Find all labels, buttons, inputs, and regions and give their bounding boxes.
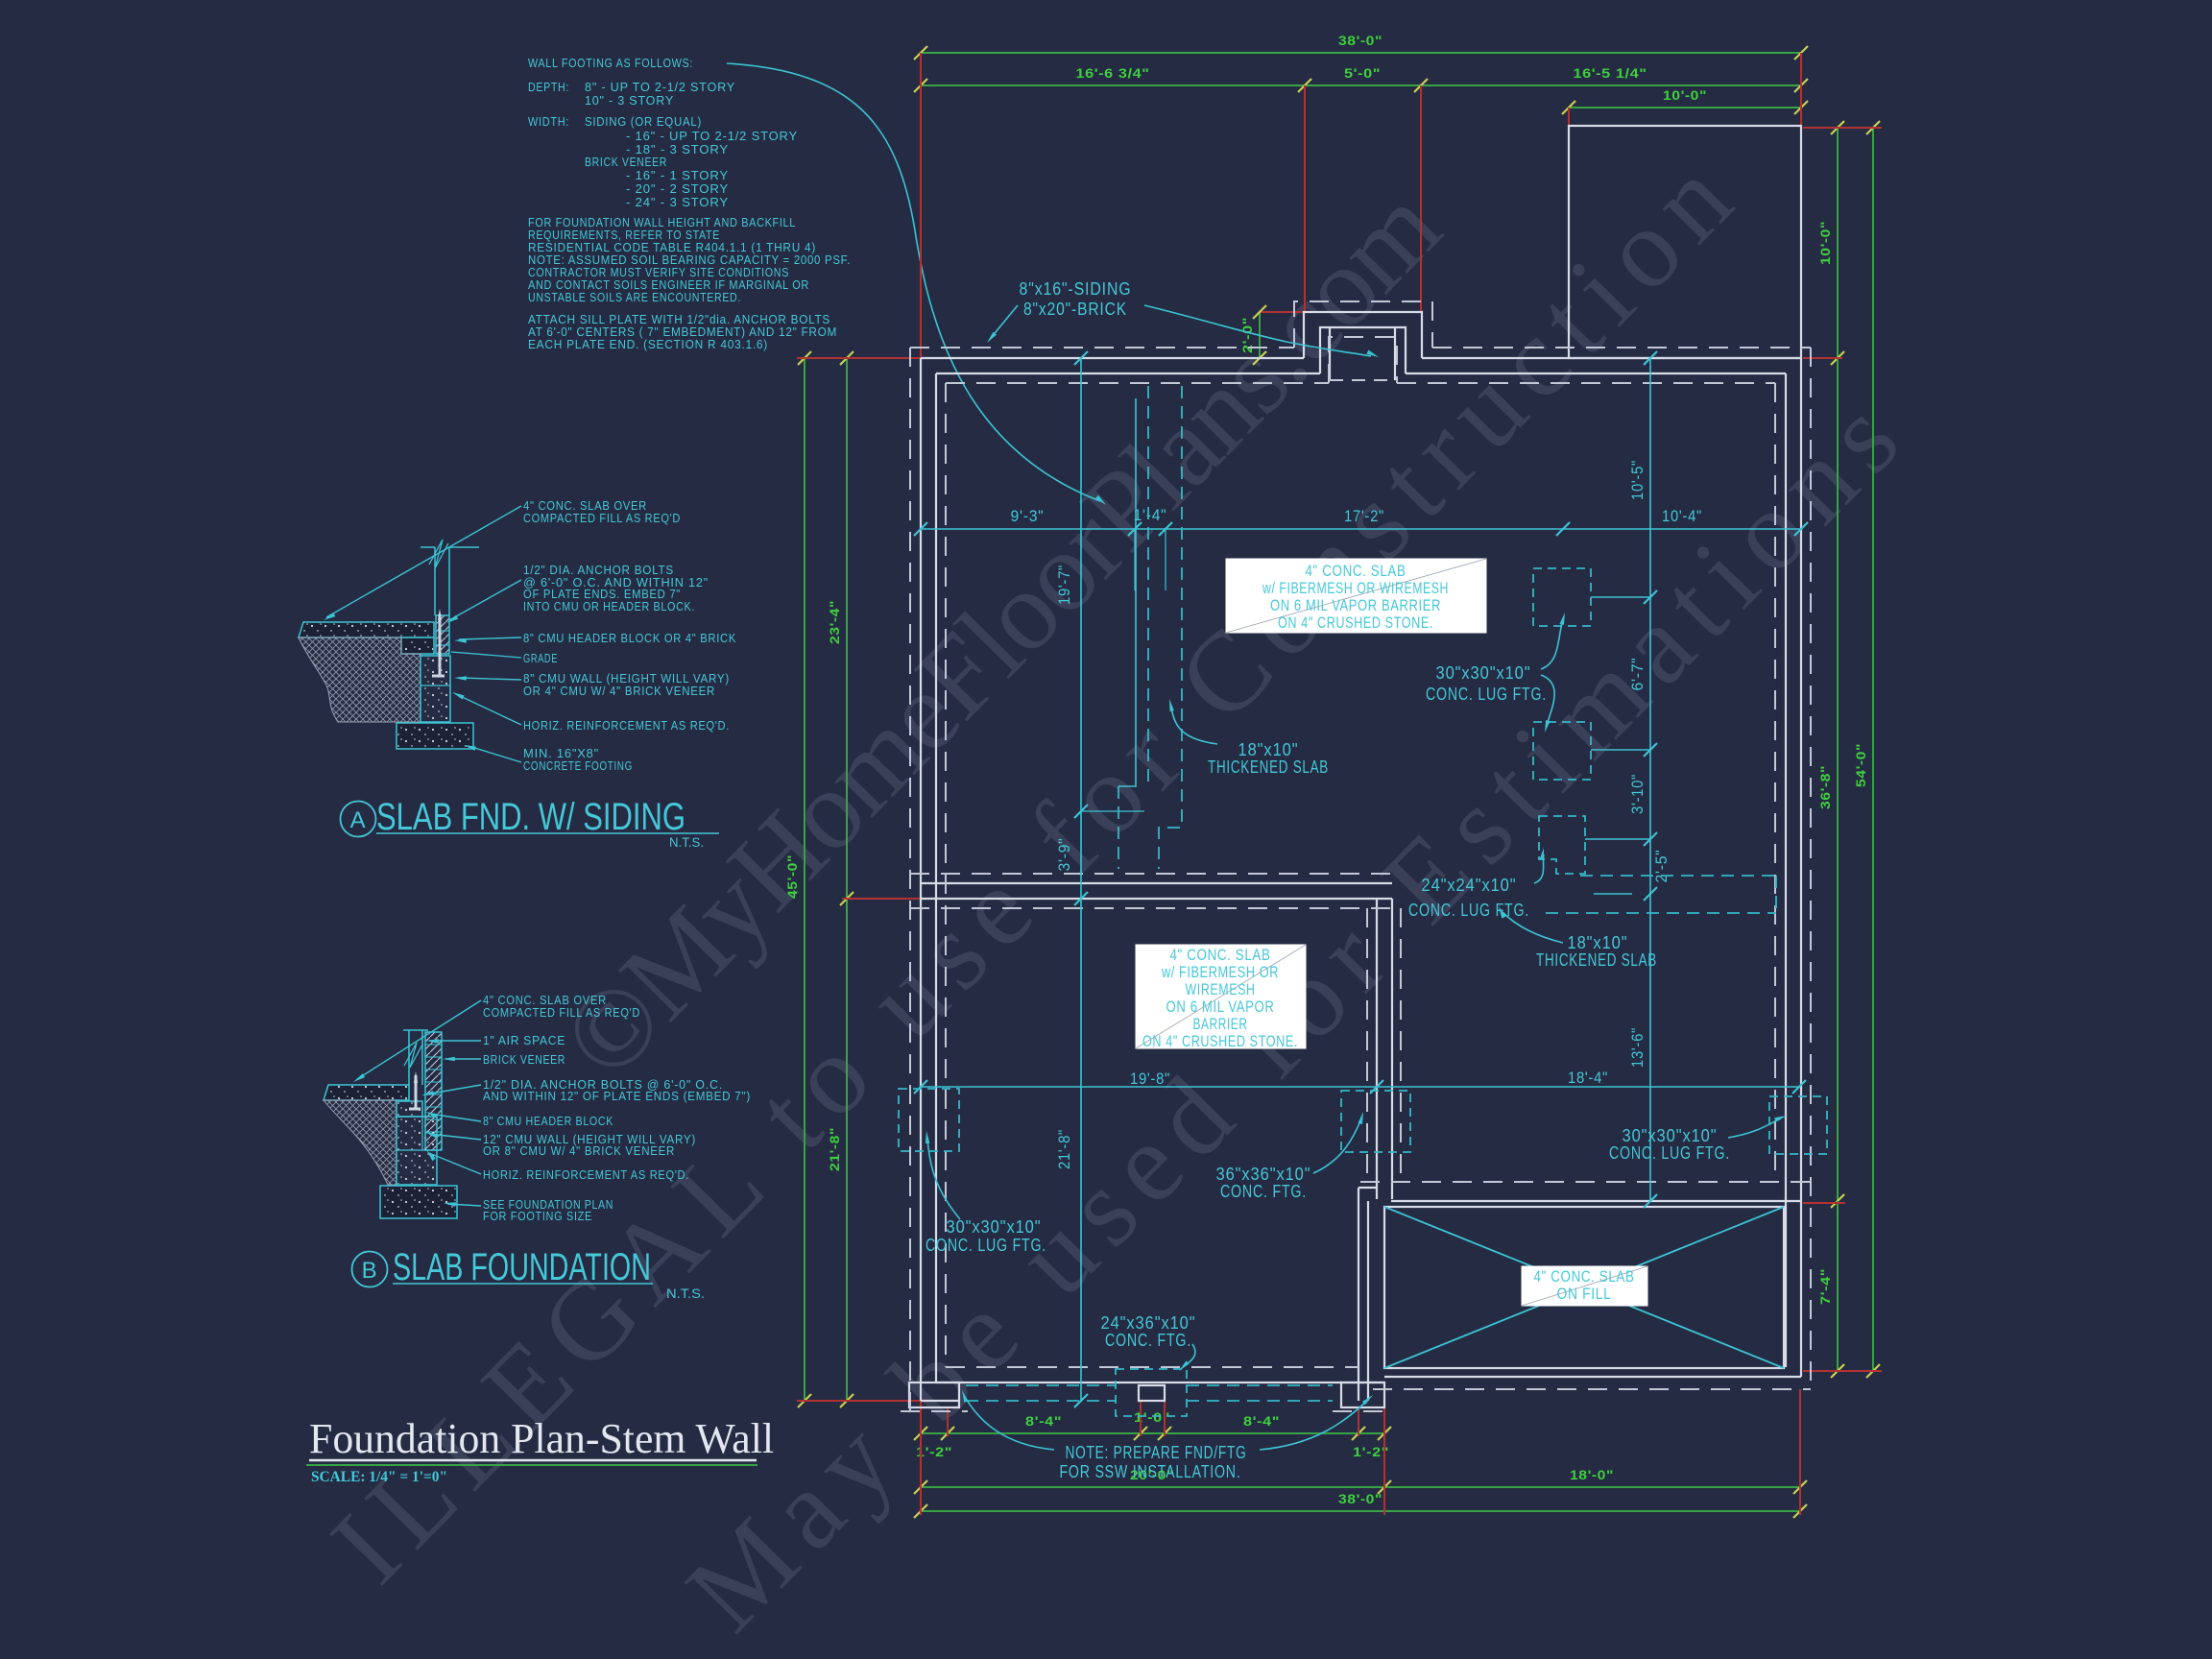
svg-text:8"x20"-BRICK: 8"x20"-BRICK: [1023, 300, 1127, 319]
svg-text:- 16" - 1 STORY: - 16" - 1 STORY: [626, 168, 729, 182]
svg-text:DEPTH:: DEPTH:: [528, 80, 569, 94]
svg-text:ON 6 MIL VAPOR BARRIER: ON 6 MIL VAPOR BARRIER: [1270, 596, 1441, 614]
svg-text:THICKENED SLAB: THICKENED SLAB: [1536, 950, 1657, 970]
svg-text:24"x36"x10": 24"x36"x10": [1101, 1313, 1196, 1333]
svg-text:THICKENED SLAB: THICKENED SLAB: [1208, 757, 1329, 777]
svg-text:- 16" - UP TO 2-1/2 STORY: - 16" - UP TO 2-1/2 STORY: [626, 129, 798, 143]
svg-text:18"x10": 18"x10": [1238, 740, 1299, 759]
svg-text:21'-8": 21'-8": [1055, 1129, 1073, 1169]
svg-text:EACH PLATE END. (SECTION R 403: EACH PLATE END. (SECTION R 403.1.6): [528, 337, 768, 351]
svg-text:13'-6": 13'-6": [1628, 1027, 1647, 1068]
svg-text:w/ FIBERMESH OR WIREMESH: w/ FIBERMESH OR WIREMESH: [1262, 579, 1449, 597]
svg-text:ON 4" CRUSHED STONE.: ON 4" CRUSHED STONE.: [1278, 613, 1433, 632]
svg-text:COMPACTED FILL AS REQ'D: COMPACTED FILL AS REQ'D: [523, 511, 681, 525]
svg-text:30"x30"x10": 30"x30"x10": [1436, 663, 1531, 683]
svg-text:2'-5": 2'-5": [1652, 850, 1671, 883]
svg-text:N.T.S.: N.T.S.: [666, 1286, 705, 1301]
svg-text:8" CMU HEADER BLOCK OR 4" BRIC: 8" CMU HEADER BLOCK OR 4" BRICK: [523, 631, 736, 645]
svg-text:4" CONC. SLAB: 4" CONC. SLAB: [1170, 946, 1271, 964]
svg-text:BARRIER: BARRIER: [1193, 1015, 1248, 1033]
svg-text:21'-8": 21'-8": [827, 1127, 842, 1171]
svg-text:WIDTH:: WIDTH:: [528, 114, 569, 129]
svg-text:ON 6 MIL VAPOR: ON 6 MIL VAPOR: [1166, 998, 1275, 1016]
svg-text:1" AIR SPACE: 1" AIR SPACE: [483, 1033, 565, 1047]
svg-text:HORIZ. REINFORCEMENT AS REQ'D.: HORIZ. REINFORCEMENT AS REQ'D.: [483, 1167, 689, 1182]
svg-text:8" - UP TO 2-1/2 STORY: 8" - UP TO 2-1/2 STORY: [585, 80, 735, 94]
svg-text:6'-7": 6'-7": [1628, 658, 1647, 691]
svg-text:GRADE: GRADE: [523, 651, 558, 665]
svg-text:Foundation Plan-Stem Wall: Foundation Plan-Stem Wall: [309, 1415, 774, 1462]
svg-text:CONC. LUG FTG.: CONC. LUG FTG.: [1408, 901, 1529, 920]
svg-text:UNSTABLE SOILS ARE ENCOUNTERED: UNSTABLE SOILS ARE ENCOUNTERED.: [528, 290, 741, 304]
svg-text:23'-4": 23'-4": [827, 600, 842, 644]
svg-text:10'-5": 10'-5": [1628, 460, 1647, 500]
svg-text:CONC. LUG FTG.: CONC. LUG FTG.: [1609, 1143, 1730, 1163]
svg-text:BRICK VENEER: BRICK VENEER: [585, 155, 667, 169]
svg-text:7'-4": 7'-4": [1817, 1268, 1833, 1305]
svg-text:NOTE: PREPARE FND/FTG: NOTE: PREPARE FND/FTG: [1066, 1443, 1247, 1462]
svg-text:24"x24"x10": 24"x24"x10": [1422, 876, 1517, 895]
svg-text:10'-0": 10'-0": [1663, 87, 1707, 103]
svg-text:8"x16"-SIDING: 8"x16"-SIDING: [1020, 279, 1132, 299]
svg-text:4" CONC. SLAB: 4" CONC. SLAB: [1534, 1267, 1635, 1286]
svg-text:36"x36"x10": 36"x36"x10": [1216, 1165, 1311, 1184]
svg-text:CONCRETE FOOTING: CONCRETE FOOTING: [523, 758, 633, 773]
svg-text:30"x30"x10": 30"x30"x10": [1623, 1126, 1718, 1145]
svg-text:B: B: [362, 1258, 378, 1284]
svg-text:FOR SSW INSTALLATION.: FOR SSW INSTALLATION.: [1060, 1462, 1241, 1481]
svg-text:36'-8": 36'-8": [1817, 765, 1833, 809]
svg-text:OR 8" CMU W/ 4" BRICK VENEER: OR 8" CMU W/ 4" BRICK VENEER: [483, 1143, 675, 1158]
svg-text:38'-0": 38'-0": [1338, 33, 1382, 48]
svg-text:10" - 3 STORY: 10" - 3 STORY: [585, 93, 674, 108]
svg-text:8'-4": 8'-4": [1025, 1413, 1062, 1429]
svg-text:38'-0": 38'-0": [1338, 1491, 1382, 1506]
svg-text:CONC. LUG FTG.: CONC. LUG FTG.: [1426, 685, 1547, 704]
svg-text:INTO CMU OR HEADER BLOCK.: INTO CMU OR HEADER BLOCK.: [523, 599, 695, 613]
svg-text:8" CMU HEADER BLOCK: 8" CMU HEADER BLOCK: [483, 1114, 613, 1128]
svg-text:SIDING (OR EQUAL): SIDING (OR EQUAL): [585, 114, 702, 129]
svg-text:SCALE: 1/4" = 1'=0": SCALE: 1/4" = 1'=0": [311, 1469, 447, 1485]
svg-text:CONC. FTG.: CONC. FTG.: [1105, 1331, 1191, 1350]
svg-text:WIREMESH: WIREMESH: [1186, 980, 1256, 998]
svg-text:HORIZ. REINFORCEMENT AS REQ'D.: HORIZ. REINFORCEMENT AS REQ'D.: [523, 718, 730, 733]
svg-text:19'-7": 19'-7": [1055, 565, 1073, 605]
svg-text:18'-4": 18'-4": [1568, 1069, 1608, 1087]
svg-text:SLAB FOUNDATION: SLAB FOUNDATION: [393, 1246, 651, 1288]
svg-text:16'-5 1/4": 16'-5 1/4": [1574, 65, 1647, 81]
svg-text:8'-4": 8'-4": [1243, 1413, 1280, 1429]
svg-text:ON 4" CRUSHED STONE.: ON 4" CRUSHED STONE.: [1142, 1032, 1298, 1050]
svg-text:CONC. LUG FTG.: CONC. LUG FTG.: [926, 1236, 1046, 1255]
svg-text:10'-4": 10'-4": [1662, 507, 1702, 525]
svg-text:18'-0": 18'-0": [1570, 1467, 1614, 1482]
svg-text:3'-10": 3'-10": [1628, 774, 1647, 814]
svg-text:CONC. FTG.: CONC. FTG.: [1220, 1182, 1307, 1201]
svg-text:N.T.S.: N.T.S.: [669, 834, 704, 850]
svg-text:w/ FIBERMESH OR: w/ FIBERMESH OR: [1161, 963, 1279, 981]
svg-text:- 20" - 2 STORY: - 20" - 2 STORY: [626, 181, 729, 196]
svg-text:3'-9": 3'-9": [1055, 838, 1073, 872]
svg-text:10'-0": 10'-0": [1817, 221, 1833, 265]
svg-text:45'-0": 45'-0": [784, 854, 800, 899]
svg-text:5'-0": 5'-0": [1344, 65, 1381, 81]
svg-text:30"x30"x10": 30"x30"x10": [947, 1217, 1042, 1237]
svg-text:9'-3": 9'-3": [1011, 507, 1045, 525]
svg-text:BRICK VENEER: BRICK VENEER: [483, 1052, 565, 1067]
svg-text:16'-6 3/4": 16'-6 3/4": [1076, 65, 1150, 81]
svg-text:17'-2": 17'-2": [1344, 507, 1384, 525]
svg-text:AND WITHIN 12" OF PLATE ENDS (: AND WITHIN 12" OF PLATE ENDS (EMBED 7"): [483, 1089, 751, 1103]
svg-text:COMPACTED FILL AS REQ'D: COMPACTED FILL AS REQ'D: [483, 1005, 640, 1020]
svg-text:A: A: [350, 807, 367, 833]
svg-text:18"x10": 18"x10": [1568, 933, 1628, 952]
svg-text:- 24" - 3 STORY: - 24" - 3 STORY: [626, 195, 729, 209]
svg-text:54'-0": 54'-0": [1853, 743, 1868, 787]
svg-text:1'-4": 1'-4": [1134, 506, 1167, 524]
svg-text:SLAB FND. W/ SIDING: SLAB FND. W/ SIDING: [376, 796, 685, 838]
svg-text:19'-8": 19'-8": [1130, 1070, 1170, 1088]
svg-text:OR 4" CMU W/ 4" BRICK VENEER: OR 4" CMU W/ 4" BRICK VENEER: [523, 684, 715, 698]
svg-text:ON FILL: ON FILL: [1557, 1285, 1612, 1303]
svg-text:FOR FOOTING SIZE: FOR FOOTING SIZE: [483, 1209, 592, 1223]
svg-text:WALL FOOTING AS FOLLOWS:: WALL FOOTING AS FOLLOWS:: [528, 56, 693, 70]
svg-text:4" CONC. SLAB: 4" CONC. SLAB: [1306, 562, 1407, 580]
